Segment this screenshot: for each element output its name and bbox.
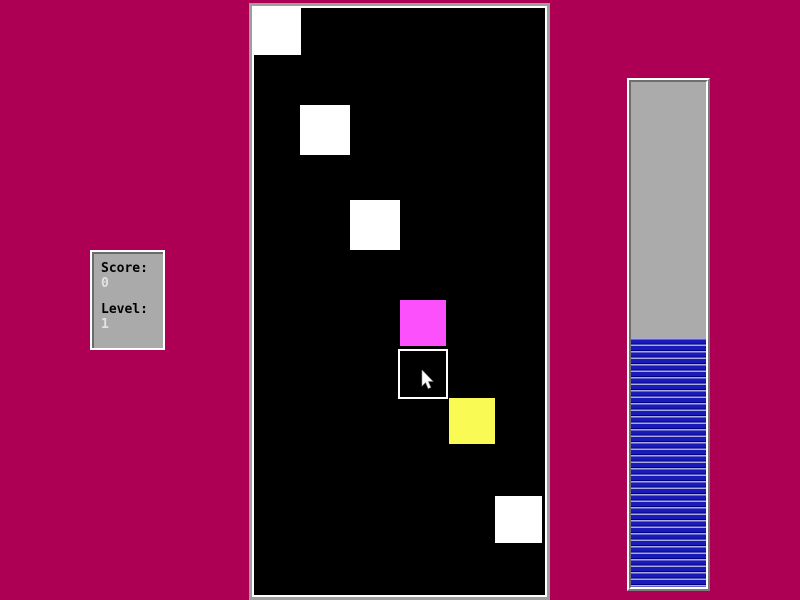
falling-block (254, 8, 301, 55)
falling-block (495, 496, 542, 543)
progress-gauge-empty (631, 82, 706, 338)
falling-block (400, 300, 446, 346)
playfield-frame (249, 3, 550, 600)
progress-gauge-track (629, 80, 708, 589)
falling-block (300, 105, 350, 155)
level-value: 1 (101, 317, 163, 332)
playfield[interactable] (252, 6, 547, 597)
score-value: 0 (101, 276, 163, 291)
level-label: Level: (101, 302, 163, 317)
falling-block (449, 398, 495, 444)
score-panel: Score: 0 Level: 1 (90, 250, 165, 350)
falling-block (350, 200, 400, 250)
progress-gauge-fill (631, 338, 706, 587)
catcher[interactable] (398, 349, 448, 399)
game-screen: Score: 0 Level: 1 (0, 0, 800, 600)
progress-gauge (627, 78, 710, 591)
score-label: Score: (101, 261, 163, 276)
